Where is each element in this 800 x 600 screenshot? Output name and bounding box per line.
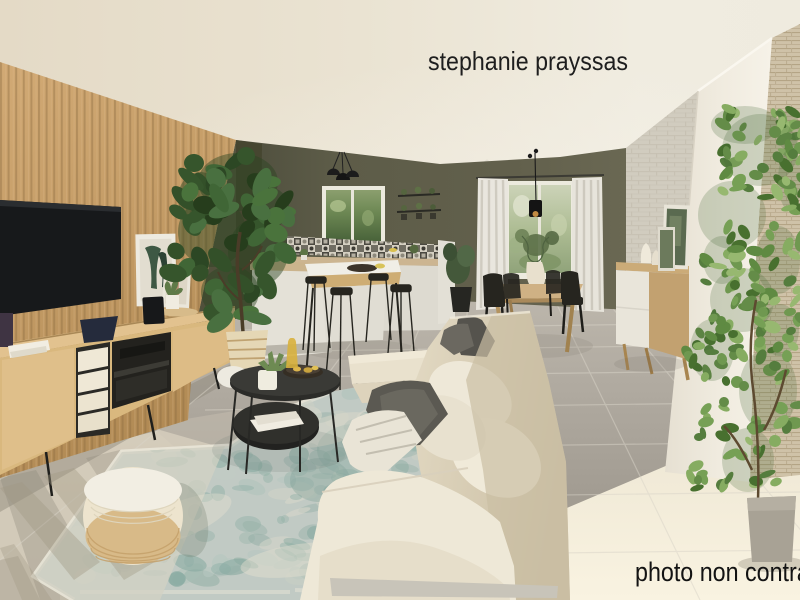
- svg-text:stephanie prayssas: stephanie prayssas: [428, 46, 628, 76]
- svg-text:photo non contractuelle: photo non contractuelle: [635, 557, 800, 587]
